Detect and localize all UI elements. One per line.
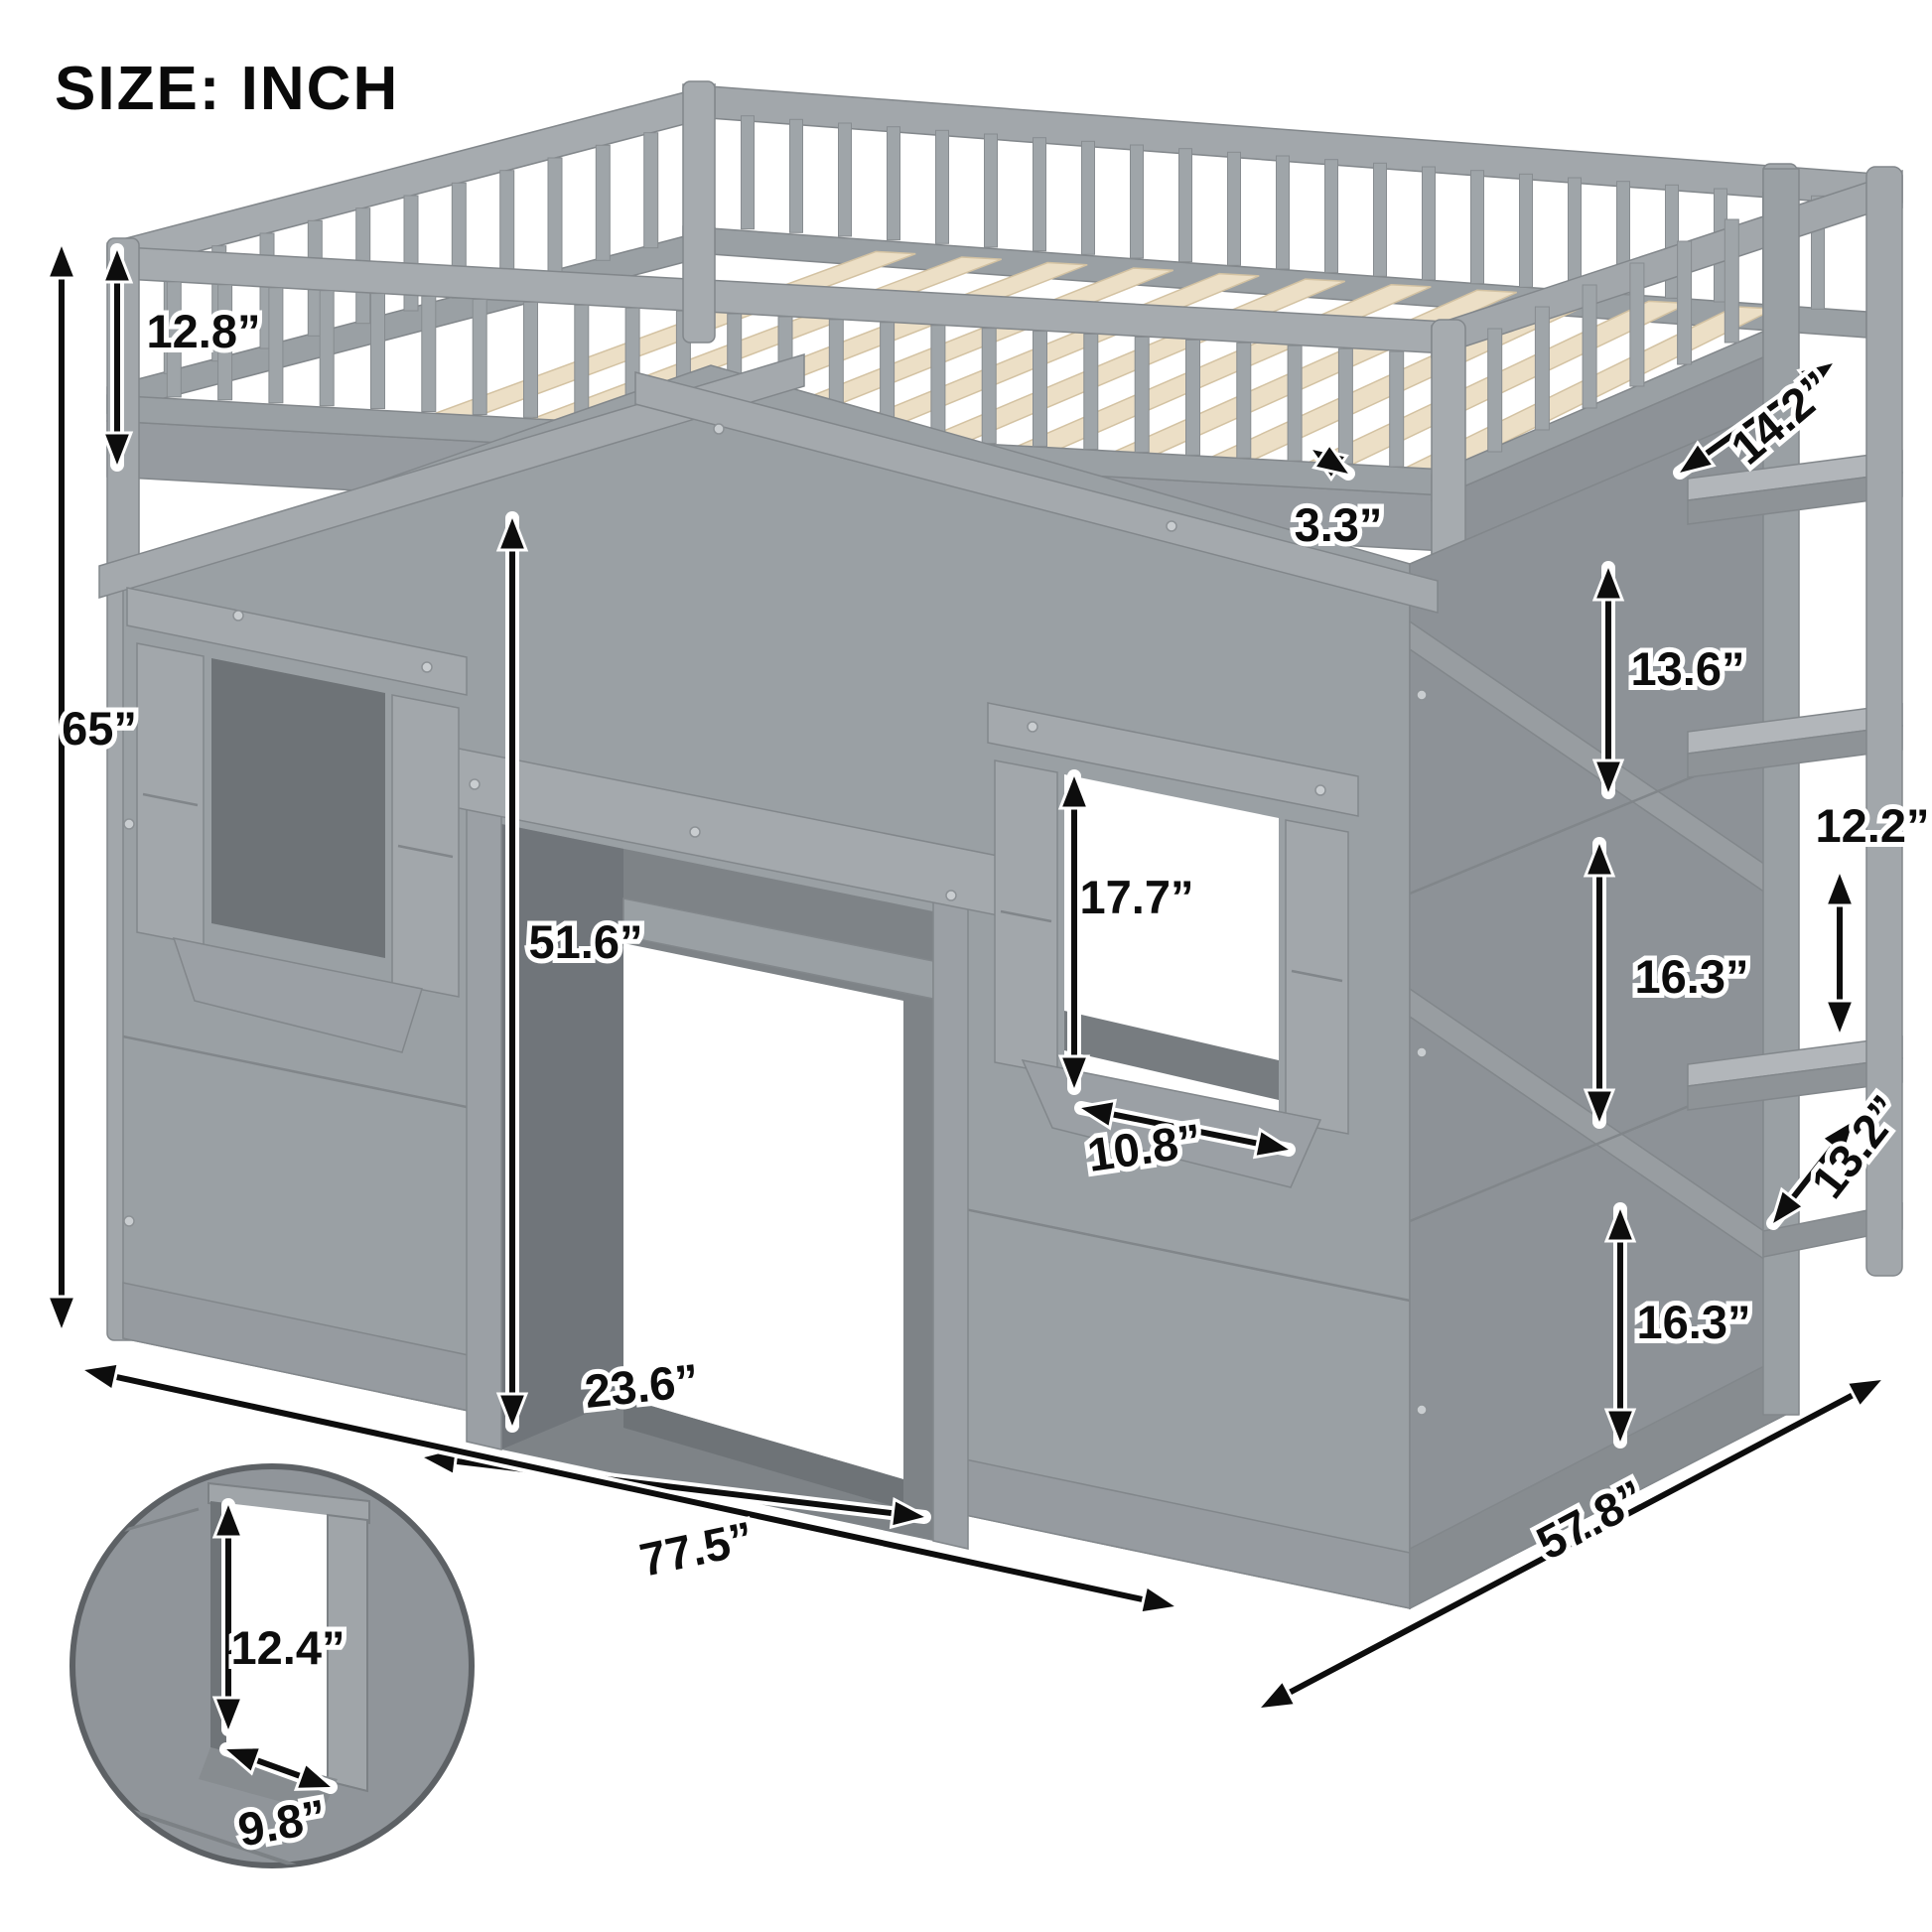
railing-baluster <box>888 127 900 240</box>
railing-baluster <box>1666 185 1679 298</box>
railing-baluster <box>839 123 852 236</box>
railing-baluster <box>575 305 589 420</box>
railing-baluster <box>320 291 334 406</box>
railing-baluster <box>1288 345 1302 461</box>
dim-label-bed-width: 77.5” <box>635 1511 758 1587</box>
dim-label-door-height: 51.6” <box>529 915 643 968</box>
railing-baluster <box>1583 285 1596 408</box>
railing-baluster <box>742 116 755 229</box>
railing-baluster <box>790 119 803 232</box>
railing-baluster <box>1034 332 1047 447</box>
railing-baluster <box>1725 219 1738 343</box>
dim-label-right-panel-upper: 13.6” <box>1631 642 1745 695</box>
dim-label-ladder-step-gap: 12.2” <box>1816 799 1930 852</box>
dim-label-slat-spacing: 3.3” <box>1295 498 1383 551</box>
railing-baluster <box>1423 167 1436 280</box>
railing-baluster <box>644 133 658 248</box>
railing-baluster <box>1569 178 1582 291</box>
railing-baluster <box>422 297 436 412</box>
dim-label-right-panel-lower: 16.3” <box>1637 1296 1751 1348</box>
railing-baluster <box>1471 171 1484 284</box>
railing-baluster <box>985 134 998 247</box>
dim-label-right-panel-middle: 16.3” <box>1635 950 1749 1003</box>
railing-baluster <box>371 294 385 409</box>
dim-label-window-height: 17.7” <box>1080 871 1194 923</box>
playhouse-body <box>99 354 1795 1608</box>
railing-baluster <box>1135 338 1149 453</box>
railing-baluster <box>1390 351 1404 467</box>
railing-baluster <box>1186 340 1200 455</box>
railing-baluster <box>1630 263 1644 386</box>
loft-bed-dimension-diagram: 12.8” 65” 14.2” 3.3” 13.6” 12.2” 16.3” 1… <box>0 0 1932 1932</box>
railing-baluster <box>1520 174 1533 287</box>
page-title: SIZE: INCH <box>55 55 399 123</box>
railing-baluster <box>1228 152 1241 265</box>
railing-baluster <box>596 145 610 260</box>
dim-label-inset-window-height: 12.4” <box>231 1621 345 1674</box>
railing-baluster <box>1338 348 1352 464</box>
railing-baluster <box>1082 141 1095 254</box>
railing-baluster <box>1535 307 1549 430</box>
railing-baluster <box>1678 241 1692 364</box>
left-window-opening <box>211 658 385 958</box>
railing-baluster <box>1179 149 1192 262</box>
railing-baluster <box>548 158 562 273</box>
railing-baluster <box>1488 329 1502 452</box>
door-jamb-right <box>933 899 968 1549</box>
diagram-drawing: 12.8” 65” 14.2” 3.3” 13.6” 12.2” 16.3” 1… <box>0 0 1932 1932</box>
railing-baluster <box>269 288 283 403</box>
dim-label-rail-height: 12.8” <box>147 305 261 357</box>
railing-baluster <box>1325 160 1338 273</box>
railing-baluster <box>473 300 486 415</box>
railing-baluster <box>524 302 538 417</box>
railing-baluster <box>1084 335 1098 450</box>
railing-baluster <box>1131 145 1144 258</box>
railing-baluster <box>1237 343 1251 458</box>
railing-post-back-left <box>683 81 715 343</box>
railing-baluster <box>931 326 945 441</box>
railing-baluster <box>1034 138 1046 251</box>
railing-baluster <box>1374 163 1387 276</box>
railing-baluster <box>936 130 949 243</box>
railing-baluster <box>982 329 996 444</box>
door-jamb-left <box>467 806 501 1449</box>
railing-baluster <box>1277 156 1290 269</box>
dim-label-overall-height: 65” <box>62 702 137 755</box>
